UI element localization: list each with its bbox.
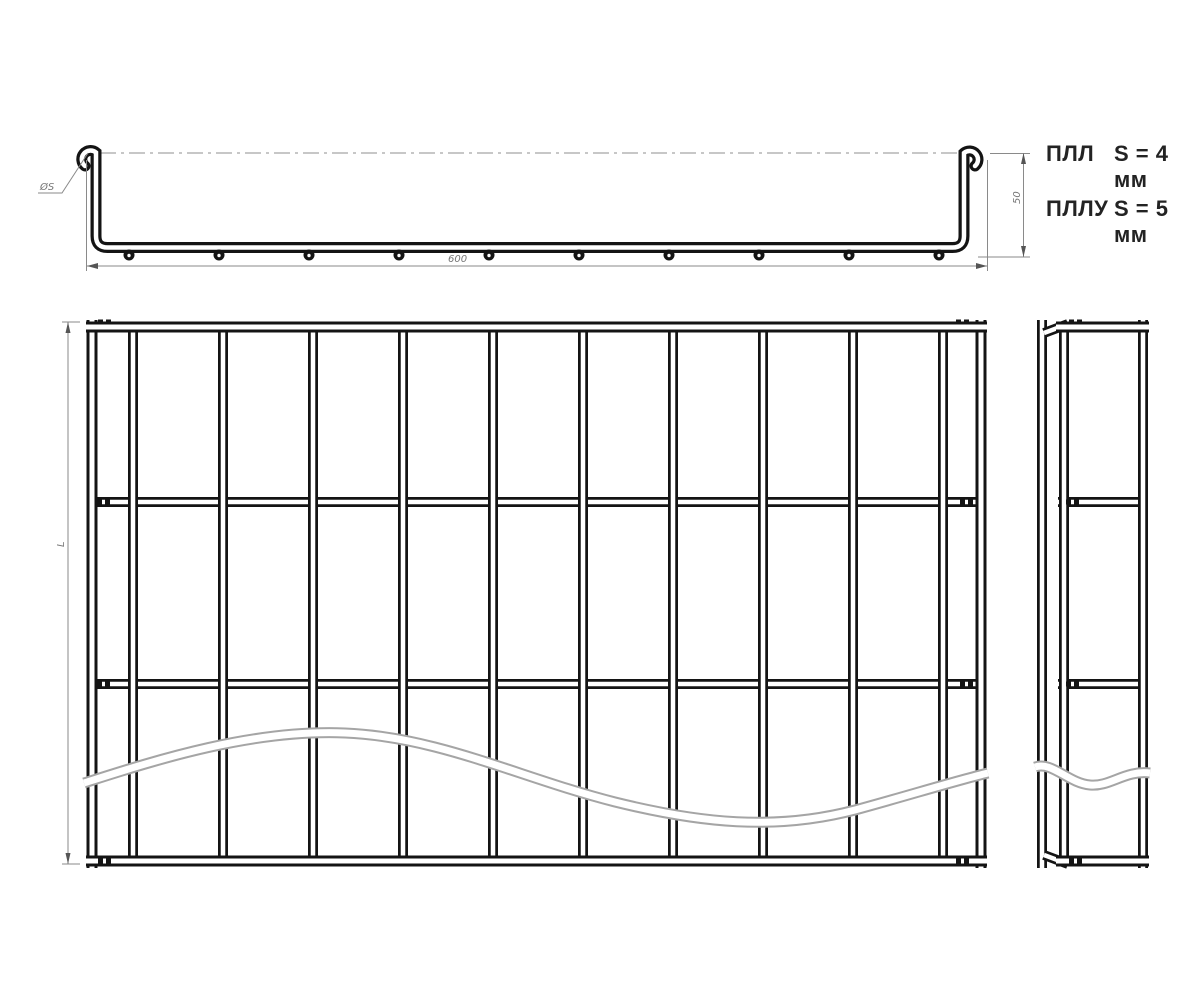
side-bars-core [1058,502,1145,684]
side-view [1035,320,1150,869]
extension-lines [62,322,80,864]
dim-height: 50 [978,153,1030,257]
model-spec-pllu: S = 5 мм [1114,196,1200,248]
arrow-top [1021,153,1026,164]
break-line-side [1035,766,1150,785]
arrow-right [976,263,987,269]
dim-width-text: 600 [448,254,467,265]
dim-length: L [56,322,80,864]
extension-lines [978,154,1030,258]
dim-height-text: 50 [1012,191,1023,204]
profile-core [82,151,978,248]
arrow-top [66,322,71,333]
model-name-pll: ПЛЛ [1046,141,1110,193]
drawing-canvas: ØS 600 50 [0,0,1200,1000]
section-view [82,151,978,261]
arrow-bottom [1021,246,1026,257]
wire-diameter-text: ØS [39,181,55,193]
side-bars-outline [1058,502,1145,684]
model-name-pllu: ПЛЛУ [1046,196,1110,248]
model-spec-pll: S = 4 мм [1114,141,1200,193]
dim-length-text: L [56,541,67,547]
plan-view [84,320,988,869]
arrow-bottom [66,853,71,864]
arrow-left [87,263,98,269]
technical-drawing: ØS 600 50 [0,0,1200,1000]
profile-outline [82,151,978,248]
legend: ПЛЛ S = 4 мм ПЛЛУ S = 5 мм [1046,141,1200,248]
